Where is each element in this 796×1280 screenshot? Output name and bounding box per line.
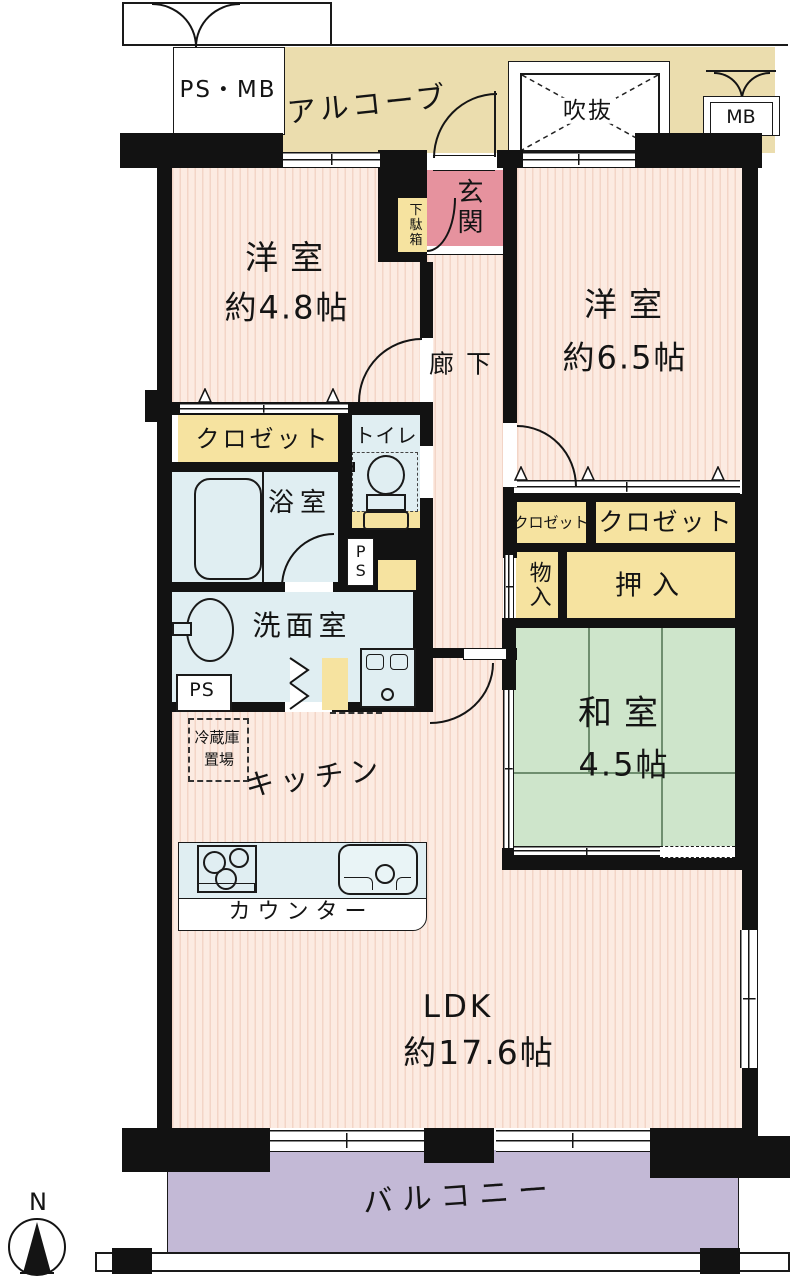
label-fridge-1: 冷蔵庫 — [194, 729, 239, 746]
sink-drain-icon — [375, 864, 395, 884]
fusuma-washitsu-south-dashed — [660, 846, 735, 858]
wall-closet-bath — [172, 462, 355, 472]
wall-top-mid — [497, 150, 523, 168]
balcony-rail-line — [95, 1252, 790, 1254]
balcony-rail-end — [788, 1252, 790, 1272]
label-shoe-box: 下駄箱 — [406, 203, 421, 248]
shaft-yellow-box — [378, 560, 416, 590]
window-balcony-left — [270, 1130, 424, 1152]
label-bedroom2-name: 洋室 — [584, 286, 674, 324]
label-ps-washroom: PS — [189, 680, 215, 702]
kitchen-dashed-line — [330, 712, 382, 714]
wall-bottom-left — [122, 1128, 270, 1172]
door-gap-corridor-ldk — [463, 648, 507, 660]
fusuma-washitsu-south — [514, 846, 660, 856]
door-pivot-mark — [581, 466, 595, 481]
door-pivot-mark — [514, 466, 528, 481]
washer-drain-icon — [381, 688, 394, 701]
label-washroom: 洗面室 — [252, 610, 351, 642]
window-balcony-right — [496, 1130, 650, 1152]
door-gap-toilet — [420, 446, 433, 498]
label-closet-large: クロゼット — [598, 509, 733, 538]
door-pivot-mark — [711, 466, 725, 481]
label-ldk-name: LDK — [423, 990, 493, 1026]
stove-grill — [197, 883, 255, 893]
label-washitsu-size: 4.5帖 — [579, 747, 670, 784]
wall-washitsu-right — [735, 494, 745, 870]
sliding-closet-bedroom1 — [180, 403, 348, 414]
window-ldk-east — [740, 930, 758, 1068]
wall-storage-divider — [558, 552, 567, 618]
exterior-line — [122, 2, 124, 45]
washer-corner — [366, 654, 384, 670]
wall-bedroom2-closet-top — [503, 494, 735, 502]
wall-oshiire-bottom — [502, 618, 744, 628]
label-compass-north: N — [29, 1189, 47, 1217]
label-counter: カウンター — [228, 899, 373, 924]
vanity-faucet-icon — [172, 622, 192, 636]
floor-plan: PS・MB アルコーブ 吹抜 MB 玄関 下駄箱 洋室 約4.8帖 廊下 洋室 … — [0, 0, 796, 1280]
sliding-storage-door — [504, 555, 514, 618]
label-ps-toilet: PS — [351, 542, 369, 580]
label-closet-small: クロゼット — [513, 514, 588, 531]
label-ps-mb: PS・MB — [179, 77, 276, 103]
label-toilet: トイレ — [355, 425, 418, 448]
label-genkan: 玄関 — [452, 178, 482, 238]
balcony-post — [700, 1248, 740, 1274]
washer-corner — [390, 654, 408, 670]
label-bedroom1-name: 洋室 — [245, 239, 335, 277]
window-void — [523, 152, 635, 168]
label-mb: MB — [726, 107, 755, 129]
toilet-base-icon — [363, 511, 409, 530]
wall-right-lower — [742, 1068, 758, 1136]
wall-top-left — [120, 133, 283, 168]
toilet-tank-icon — [366, 494, 406, 511]
fold-door-icon — [288, 656, 324, 712]
sink-ledge — [396, 877, 411, 890]
sink-ledge — [344, 877, 373, 890]
wall-corridor-door-stub — [428, 648, 465, 658]
vanity-icon — [186, 598, 234, 662]
balcony-rail-end — [95, 1252, 97, 1272]
door-pivot-mark — [198, 388, 212, 403]
label-hallway: 廊下 — [429, 351, 503, 380]
washroom-door-pocket — [322, 658, 348, 710]
label-bath: 浴室 — [268, 489, 332, 519]
wall-left-bump — [145, 390, 172, 422]
door-pivot-mark — [326, 388, 340, 403]
bath-partition-line — [262, 472, 264, 582]
label-storage: 物入 — [525, 561, 550, 609]
label-ldk-size: 約17.6帖 — [403, 1034, 554, 1072]
wall-bottom-pillar — [424, 1128, 494, 1163]
label-bedroom2-size: 約6.5帖 — [563, 340, 688, 377]
exterior-line — [330, 2, 332, 45]
door-arc-psmb-right — [195, 3, 240, 47]
washitsu-area — [512, 628, 740, 856]
label-washitsu-name: 和室 — [578, 694, 670, 733]
balcony-post — [112, 1248, 152, 1274]
wall-closet-row — [503, 543, 735, 552]
wall-washitsu-south — [502, 856, 744, 870]
label-fridge-2: 置場 — [204, 751, 234, 768]
toilet-bowl-icon — [367, 455, 405, 495]
front-door-leaf — [494, 91, 496, 157]
window-bedroom1-north — [283, 152, 380, 168]
tatami-line — [661, 628, 663, 856]
label-oshiire: 押入 — [615, 570, 689, 601]
door-arc-psmb-left — [152, 3, 197, 47]
wall-left — [157, 133, 172, 1163]
stove-burner — [229, 848, 249, 868]
label-bedroom1-size: 約4.8帖 — [225, 290, 350, 327]
label-void: 吹抜 — [560, 98, 616, 124]
compass-icon — [4, 1214, 74, 1280]
fusuma-washitsu-west — [503, 690, 514, 848]
bathtub-icon — [194, 478, 262, 580]
balcony-rail-line — [95, 1270, 790, 1272]
wall-bottom-right-block — [650, 1136, 790, 1178]
label-closet-west: クロゼット — [196, 426, 331, 454]
